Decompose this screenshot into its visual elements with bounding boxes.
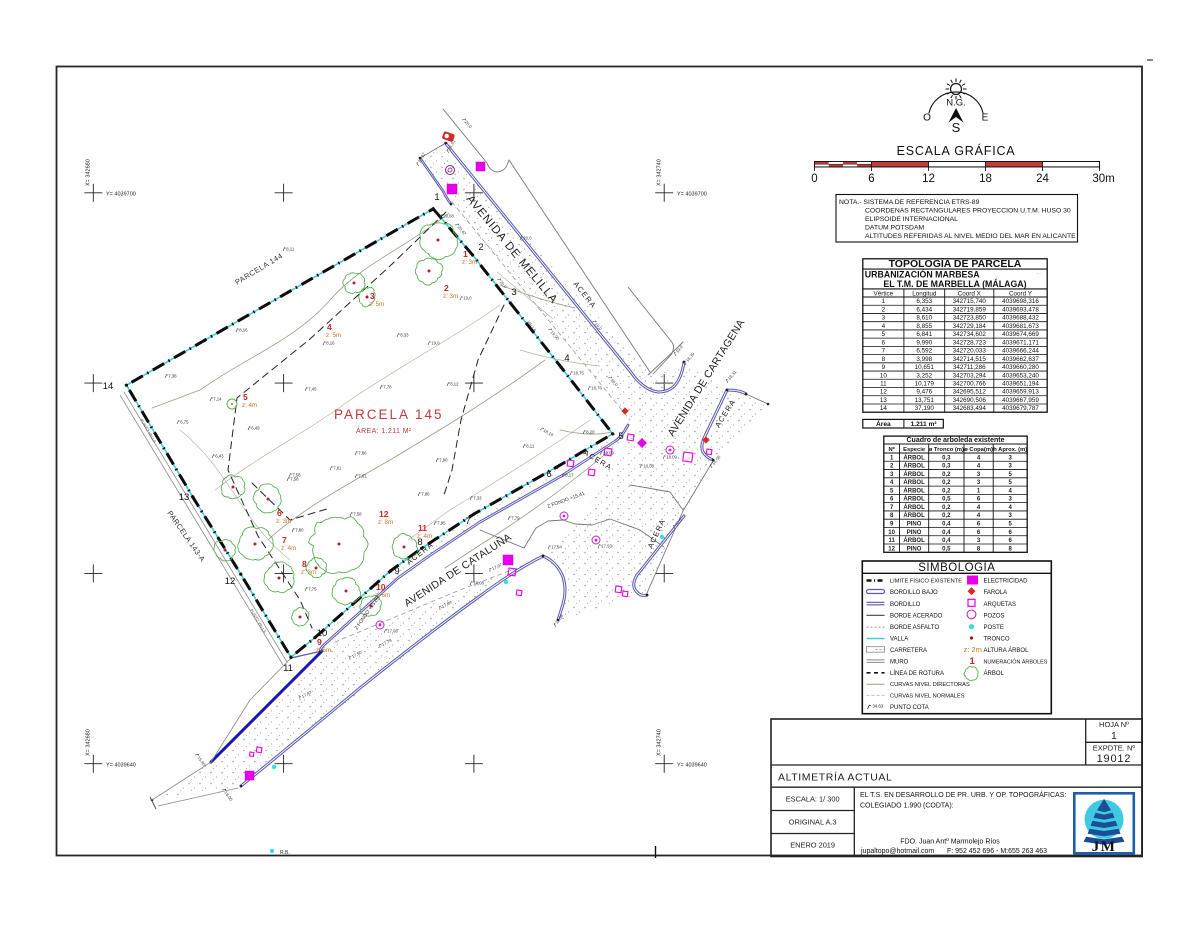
svg-text:342719,859: 342719,859: [953, 306, 987, 313]
svg-text:7,58: 7,58: [353, 512, 362, 517]
svg-text:17,96: 17,96: [387, 629, 398, 634]
svg-text:0,3: 0,3: [942, 464, 951, 470]
svg-text:EL T.S. EN DESARROLLO DE PR. U: EL T.S. EN DESARROLLO DE PR. URB. Y OP. …: [860, 790, 1066, 799]
svg-text:BORDILLO: BORDILLO: [890, 602, 921, 608]
svg-text:1: 1: [463, 249, 468, 259]
svg-text:Coord X: Coord X: [958, 290, 982, 297]
svg-text:8,11: 8,11: [286, 247, 295, 252]
svg-text:342711,286: 342711,286: [953, 364, 986, 371]
svg-text:0,2: 0,2: [942, 513, 951, 519]
svg-text:X= 342740: X= 342740: [657, 159, 663, 186]
svg-text:7,79: 7,79: [511, 516, 520, 521]
svg-text:1: 1: [1111, 731, 1117, 742]
svg-text:3: 3: [882, 315, 886, 322]
svg-text:7,75: 7,75: [308, 587, 317, 592]
svg-text:2: 2: [444, 283, 449, 293]
svg-text:0,2: 0,2: [942, 505, 951, 511]
svg-text:BORDE ACERADO: BORDE ACERADO: [890, 613, 943, 619]
svg-text:COORDENAS RECTANGULARES PROYEC: COORDENAS RECTANGULARES PROYECCION U.T.M…: [865, 208, 1071, 215]
svg-text:z: 5m: z: 5m: [316, 647, 331, 654]
svg-text:30m: 30m: [1092, 173, 1114, 185]
svg-text:12: 12: [922, 173, 935, 185]
svg-text:ALTURA ÁRBOL: ALTURA ÁRBOL: [984, 647, 1030, 654]
svg-text:7: 7: [282, 535, 287, 545]
svg-text:7,58: 7,58: [290, 477, 299, 482]
svg-text:ÁRBOL: ÁRBOL: [903, 454, 925, 461]
svg-text:11: 11: [880, 380, 887, 387]
svg-text:5: 5: [618, 431, 623, 442]
svg-text:14: 14: [880, 405, 888, 412]
svg-text:ÁRBOL: ÁRBOL: [903, 537, 925, 544]
svg-text:FAROLA: FAROLA: [984, 590, 1008, 596]
svg-text:7,95: 7,95: [437, 521, 446, 526]
svg-text:z: 4m: z: 4m: [242, 402, 257, 409]
svg-text:PARCELA 145: PARCELA 145: [334, 407, 444, 422]
svg-text:z: 3m: z: 3m: [443, 293, 458, 300]
svg-text:4039653,240: 4039653,240: [1002, 372, 1039, 379]
svg-text:LIMITE FÍSICO EXISTENTE: LIMITE FÍSICO EXISTENTE: [890, 578, 962, 585]
svg-text:6: 6: [868, 173, 874, 185]
svg-text:z: 5m: z: 5m: [326, 332, 341, 339]
svg-text:Y= 4039640: Y= 4039640: [106, 763, 136, 769]
svg-text:4: 4: [327, 322, 332, 332]
svg-text:6: 6: [277, 508, 282, 518]
svg-text:4039688,432: 4039688,432: [1002, 315, 1039, 322]
svg-text:4039666,244: 4039666,244: [1002, 348, 1039, 355]
svg-text:342695,512: 342695,512: [953, 389, 987, 396]
svg-text:24: 24: [1036, 173, 1049, 185]
svg-text:O: O: [923, 113, 931, 124]
svg-text:Y= 4039700: Y= 4039700: [106, 192, 136, 198]
svg-text:6,353: 6,353: [916, 298, 932, 305]
svg-text:8,33: 8,33: [400, 333, 409, 338]
svg-text:X= 342740: X= 342740: [657, 729, 663, 756]
svg-text:6: 6: [546, 469, 551, 480]
svg-text:10,179: 10,179: [915, 380, 935, 387]
svg-text:342683,494: 342683,494: [953, 405, 987, 412]
svg-text:7,61: 7,61: [333, 466, 342, 471]
svg-text:EL T.M. DE MARBELLA (MÁLAGA): EL T.M. DE MARBELLA (MÁLAGA): [883, 279, 1026, 289]
svg-text:ÁRBOL: ÁRBOL: [903, 504, 925, 511]
svg-text:342720,033: 342720,033: [953, 348, 987, 355]
svg-text:Coord Y: Coord Y: [1009, 290, 1033, 297]
svg-text:NUMERACIÓN ÁRBOLES: NUMERACIÓN ÁRBOLES: [984, 658, 1048, 665]
svg-text:7,33: 7,33: [473, 496, 482, 501]
svg-text:18,08: 18,08: [643, 464, 654, 469]
svg-text:Longitud: Longitud: [912, 290, 937, 297]
svg-text:8: 8: [882, 356, 886, 363]
svg-text:342715,740: 342715,740: [953, 298, 987, 305]
svg-text:0,2: 0,2: [942, 488, 951, 494]
svg-text:CURVAS NIVEL NORMALES: CURVAS NIVEL NORMALES: [890, 694, 965, 700]
svg-text:11: 11: [283, 663, 293, 674]
svg-text:7,86: 7,86: [421, 492, 430, 497]
svg-text:20,0: 20,0: [523, 236, 532, 241]
svg-text:6,434: 6,434: [916, 306, 932, 313]
svg-text:10: 10: [888, 530, 895, 536]
svg-text:0,4: 0,4: [942, 530, 951, 536]
svg-text:F: 952 452 696 - M:655 263 463: F: 952 452 696 - M:655 263 463: [947, 848, 1047, 855]
svg-text:8,20: 8,20: [586, 430, 595, 435]
svg-text:4039660,280: 4039660,280: [1002, 364, 1039, 371]
svg-text:ÁREA: 1.211 M²: ÁREA: 1.211 M²: [356, 426, 412, 435]
svg-text:Cuadro de arboleda existente: Cuadro de arboleda existente: [906, 437, 1004, 444]
svg-text:Área: Área: [876, 419, 891, 428]
svg-text:2: 2: [478, 242, 483, 253]
svg-text:BORDILLO BAJO: BORDILLO BAJO: [890, 590, 938, 596]
svg-text:MURO: MURO: [890, 659, 909, 665]
svg-text:7: 7: [882, 348, 886, 355]
svg-text:E: E: [982, 113, 989, 124]
svg-text:8,16: 8,16: [239, 328, 248, 333]
svg-text:CURVAS NIVEL DIRECTORAS: CURVAS NIVEL DIRECTORAS: [890, 682, 970, 688]
svg-text:PUNTO COTA: PUNTO COTA: [890, 705, 929, 711]
svg-text:7,14: 7,14: [213, 397, 222, 402]
svg-text:FDO. Juan Antº Marmolejo Ríos: FDO. Juan Antº Marmolejo Ríos: [900, 839, 1000, 846]
svg-text:6,43: 6,43: [215, 454, 224, 459]
svg-text:342703,294: 342703,294: [953, 372, 987, 379]
svg-text:COLEGIADO 1.990 (CODTA):: COLEGIADO 1.990 (CODTA):: [860, 803, 954, 810]
svg-text:8,610: 8,610: [916, 315, 932, 322]
svg-text:X= 342680: X= 342680: [86, 729, 92, 756]
svg-text:Vértice: Vértice: [874, 290, 894, 297]
svg-text:LÍNEA DE ROTURA: LÍNEA DE ROTURA: [890, 670, 944, 677]
svg-text:12: 12: [888, 546, 895, 552]
svg-text:37,190: 37,190: [915, 405, 935, 412]
svg-text:1.211 m²: 1.211 m²: [911, 421, 938, 428]
svg-text:7,45: 7,45: [308, 387, 317, 392]
svg-text:0,3: 0,3: [942, 455, 951, 461]
svg-text:11: 11: [418, 523, 427, 533]
svg-text:ø Copa(m): ø Copa(m): [964, 447, 993, 453]
svg-text:19012: 19012: [1097, 753, 1132, 765]
svg-text:PINO: PINO: [907, 522, 922, 528]
svg-text:18,09: 18,09: [603, 451, 614, 456]
svg-text:z: 3m: z: 3m: [276, 518, 291, 525]
svg-text:8,17: 8,17: [565, 473, 574, 478]
svg-text:20,68: 20,68: [443, 214, 454, 219]
svg-text:10: 10: [376, 582, 386, 592]
svg-text:ORIGINAL A.3: ORIGINAL A.3: [789, 818, 837, 827]
svg-text:ÁRBOL: ÁRBOL: [903, 471, 925, 478]
svg-text:6,841: 6,841: [916, 331, 932, 338]
svg-text:jupaltopo@hotmail.com: jupaltopo@hotmail.com: [860, 848, 934, 855]
svg-text:10: 10: [880, 372, 888, 379]
svg-text:ARQUETAS: ARQUETAS: [984, 602, 1017, 608]
svg-text:z: 4m: z: 4m: [417, 533, 432, 540]
svg-text:4039693,478: 4039693,478: [1002, 306, 1039, 313]
svg-text:4039651,194: 4039651,194: [1002, 380, 1039, 387]
svg-text:Especie: Especie: [903, 447, 926, 453]
svg-text:R.B.: R.B.: [280, 850, 290, 856]
svg-text:4: 4: [882, 323, 886, 330]
svg-text:3,998: 3,998: [916, 356, 932, 363]
svg-text:19,0: 19,0: [463, 296, 472, 301]
svg-text:6,592: 6,592: [916, 348, 932, 355]
svg-text:13: 13: [179, 492, 190, 503]
svg-text:0,5: 0,5: [942, 497, 951, 503]
svg-text:0: 0: [811, 173, 817, 185]
svg-text:342690,506: 342690,506: [953, 397, 987, 404]
svg-text:7,78: 7,78: [383, 385, 392, 390]
svg-text:Y= 4039700: Y= 4039700: [677, 192, 707, 198]
svg-text:8,11: 8,11: [526, 444, 535, 449]
svg-text:9: 9: [882, 364, 886, 371]
svg-text:h Aprox. (m): h Aprox. (m): [993, 447, 1027, 453]
svg-text:342734,602: 342734,602: [953, 331, 987, 338]
svg-text:9: 9: [317, 637, 322, 647]
svg-text:X= 342680: X= 342680: [86, 159, 92, 186]
svg-text:Nº: Nº: [888, 447, 895, 453]
svg-text:ESCALA: 1/ 300: ESCALA: 1/ 300: [786, 795, 840, 804]
svg-text:34.63: 34.63: [873, 704, 884, 709]
svg-text:N.G.: N.G.: [946, 98, 966, 109]
svg-text:7,61: 7,61: [358, 474, 367, 479]
svg-text:12: 12: [225, 576, 236, 587]
svg-text:7: 7: [465, 516, 470, 527]
svg-text:PINO: PINO: [907, 530, 922, 536]
svg-text:SIMBOLOGÍA: SIMBOLOGÍA: [918, 561, 995, 574]
svg-text:8: 8: [302, 559, 307, 569]
svg-text:0,5: 0,5: [942, 546, 951, 552]
svg-text:BORDE ASFALTO: BORDE ASFALTO: [890, 625, 939, 631]
svg-text:VALLA: VALLA: [890, 637, 908, 643]
svg-text:ÁRBOL: ÁRBOL: [984, 670, 1005, 677]
svg-text:4039679,787: 4039679,787: [1002, 405, 1039, 412]
svg-text:ALTIMETRÍA ACTUAL: ALTIMETRÍA ACTUAL: [778, 771, 892, 784]
svg-text:DATUM POTSDAM: DATUM POTSDAM: [865, 225, 924, 232]
svg-text:z: 5m: z: 5m: [369, 301, 384, 308]
svg-text:NOTA.- SISTEMA DE REFERENCIA E: NOTA.- SISTEMA DE REFERENCIA ETRS-89: [839, 199, 980, 206]
svg-text:2: 2: [882, 306, 886, 313]
svg-text:10,651: 10,651: [915, 364, 935, 371]
svg-text:S: S: [952, 120, 961, 135]
svg-text:6,49: 6,49: [251, 426, 260, 431]
svg-text:9,990: 9,990: [916, 339, 932, 346]
svg-text:3: 3: [370, 291, 375, 301]
svg-text:19,0: 19,0: [431, 341, 440, 346]
svg-text:9,476: 9,476: [916, 389, 932, 396]
svg-text:4039681,673: 4039681,673: [1002, 323, 1039, 330]
svg-text:17,93: 17,93: [601, 544, 612, 549]
svg-text:ESCALA GRÁFICA: ESCALA GRÁFICA: [897, 143, 1016, 158]
svg-text:z: 3m: z: 3m: [301, 569, 316, 576]
svg-text:18,08: 18,08: [473, 581, 484, 586]
svg-text:12: 12: [880, 389, 888, 396]
svg-text:18: 18: [979, 173, 992, 185]
svg-text:z: 2m: z: 2m: [964, 645, 982, 654]
svg-text:342728,723: 342728,723: [953, 339, 987, 346]
svg-text:ÁRBOL: ÁRBOL: [903, 463, 925, 470]
svg-text:ÁRBOL: ÁRBOL: [903, 496, 925, 503]
svg-text:4: 4: [564, 353, 569, 364]
svg-text:0,2: 0,2: [942, 480, 951, 486]
svg-text:ø Tronco (m): ø Tronco (m): [929, 447, 964, 453]
svg-text:18,75: 18,75: [573, 371, 584, 376]
svg-text:7,86: 7,86: [358, 451, 367, 456]
svg-text:z: 8m: z: 8m: [378, 519, 393, 526]
svg-text:JM: JM: [1092, 839, 1117, 855]
svg-text:4039674,669: 4039674,669: [1002, 331, 1039, 338]
svg-text:342729,184: 342729,184: [953, 323, 987, 330]
svg-text:TRONCO: TRONCO: [984, 637, 1010, 643]
svg-text:13,751: 13,751: [915, 397, 935, 404]
svg-text:HOJA Nº: HOJA Nº: [1099, 720, 1129, 729]
svg-text:342723,850: 342723,850: [953, 315, 987, 322]
svg-text:8,855: 8,855: [916, 323, 932, 330]
svg-text:7,38: 7,38: [168, 374, 177, 379]
svg-text:3: 3: [511, 287, 516, 298]
svg-text:POSTE: POSTE: [984, 625, 1004, 631]
svg-text:13: 13: [880, 397, 888, 404]
svg-text:TOPOLOGÍA DE PARCELA: TOPOLOGÍA DE PARCELA: [889, 257, 1022, 270]
svg-text:4039662,637: 4039662,637: [1002, 356, 1039, 363]
svg-text:1: 1: [882, 298, 886, 305]
svg-text:6,75: 6,75: [180, 420, 189, 425]
svg-text:Y= 4039640: Y= 4039640: [677, 763, 707, 769]
svg-text:0,4: 0,4: [942, 522, 951, 528]
svg-text:ELECTRICIDAD: ELECTRICIDAD: [984, 579, 1029, 585]
svg-text:POZOS: POZOS: [984, 613, 1005, 619]
svg-text:18.09: 18.09: [666, 455, 677, 460]
svg-text:17,94: 17,94: [551, 545, 562, 550]
svg-text:CARRETERA: CARRETERA: [890, 648, 927, 654]
svg-text:ÁRBOL: ÁRBOL: [903, 479, 925, 486]
svg-text:14: 14: [103, 381, 114, 392]
svg-text:6: 6: [882, 339, 886, 346]
svg-text:EXPDTE. Nº: EXPDTE. Nº: [1093, 744, 1136, 753]
svg-text:7,80: 7,80: [295, 528, 304, 533]
svg-text:8,12: 8,12: [450, 382, 459, 387]
svg-text:PINO: PINO: [907, 546, 922, 552]
svg-text:342714,515: 342714,515: [953, 356, 987, 363]
svg-text:4039667,959: 4039667,959: [1002, 397, 1039, 404]
svg-text:4039671,171: 4039671,171: [1002, 339, 1039, 346]
svg-text:8,16: 8,16: [326, 341, 335, 346]
svg-text:0,2: 0,2: [942, 472, 951, 478]
svg-text:ALTITUDES REFERIDAS AL NIVEL M: ALTITUDES REFERIDAS AL NIVEL MEDIO DEL M…: [865, 233, 1076, 240]
svg-text:9: 9: [394, 566, 399, 577]
svg-text:11: 11: [888, 538, 895, 544]
svg-text:1: 1: [434, 192, 439, 203]
svg-text:ÁRBOL: ÁRBOL: [903, 487, 925, 494]
svg-text:ELIPSOIDE INTERNACIONAL: ELIPSOIDE INTERNACIONAL: [865, 216, 958, 223]
svg-text:5: 5: [882, 331, 886, 338]
svg-text:4039698,316: 4039698,316: [1002, 298, 1039, 305]
svg-text:1: 1: [970, 656, 976, 667]
svg-text:12: 12: [379, 509, 389, 519]
svg-text:18,76: 18,76: [591, 386, 602, 391]
svg-text:ÁRBOL: ÁRBOL: [903, 512, 925, 519]
svg-text:0,4: 0,4: [942, 538, 951, 544]
svg-text:~··: ~··: [1036, 271, 1041, 276]
svg-text:3,252: 3,252: [916, 372, 932, 379]
svg-text:342700,766: 342700,766: [953, 380, 987, 387]
svg-text:z: 4m: z: 4m: [281, 545, 296, 552]
svg-text:7,90: 7,90: [439, 458, 448, 463]
svg-text:z: 3m: z: 3m: [462, 259, 477, 266]
svg-text:URBANIZACIÓN MARBESA: URBANIZACIÓN MARBESA: [865, 269, 980, 280]
svg-text:5: 5: [243, 392, 248, 402]
svg-text:ENERO 2019: ENERO 2019: [790, 841, 835, 850]
svg-text:4039659,913: 4039659,913: [1002, 389, 1039, 396]
